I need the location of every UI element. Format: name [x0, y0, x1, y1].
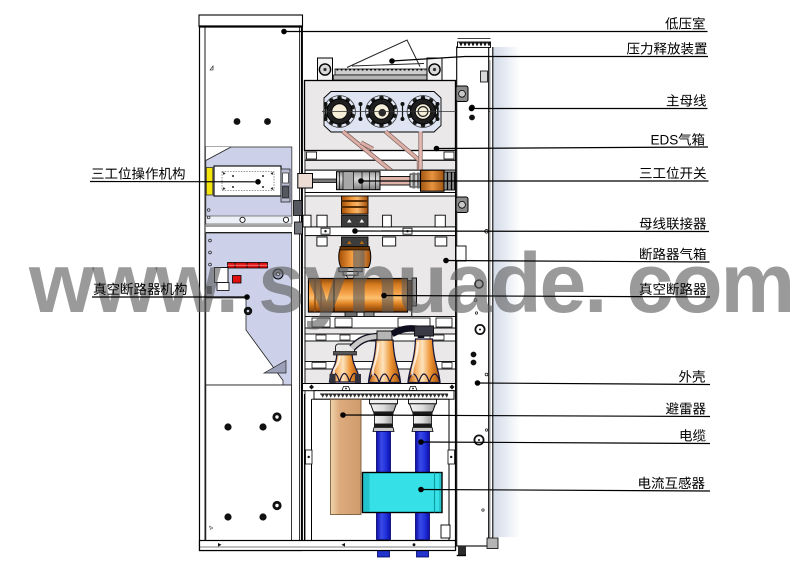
svg-text:EDS: EDS	[651, 133, 679, 148]
